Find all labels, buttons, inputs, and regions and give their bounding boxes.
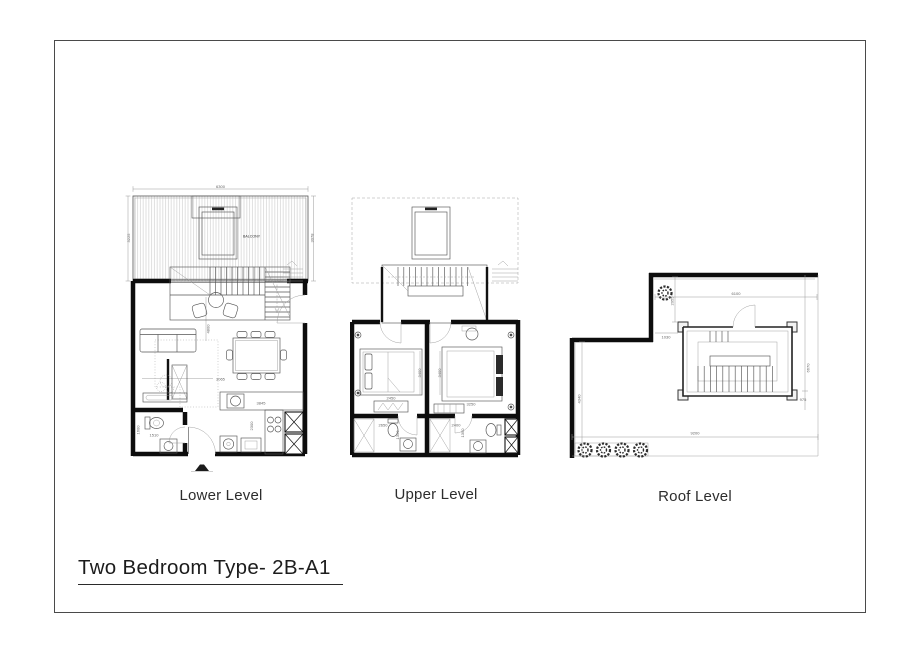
- rug: [155, 340, 218, 407]
- drawing-sheet: BALCONY 6300 3225 3078 4800 3065 3845 23…: [0, 0, 915, 655]
- dim-lower-top: 6300: [216, 184, 226, 189]
- wardrobe-1: [374, 401, 408, 412]
- hall-table: [191, 293, 238, 319]
- stove: [268, 417, 282, 432]
- toilet: [150, 418, 164, 429]
- lower-level-drawing: BALCONY 6300 3225 3078 4800 3065 3845 23…: [125, 183, 317, 475]
- dim-roof-left: 4340: [577, 394, 582, 404]
- toilet-2-tank: [497, 425, 501, 435]
- dim-bed1-h: 3400: [417, 368, 422, 378]
- entry: [189, 427, 216, 472]
- dim-living: 3065: [216, 377, 226, 382]
- roof-door-arc: [733, 305, 755, 327]
- balcony-below-outline: [352, 198, 518, 283]
- side-entry-steps: [492, 261, 518, 281]
- dim-lower-right: 3078: [310, 233, 315, 243]
- balcony-label: BALCONY: [243, 235, 261, 239]
- bedroom-2: [434, 326, 503, 413]
- upper-walls: [352, 320, 518, 455]
- dim-roof-stair-offset: 2055: [670, 296, 675, 306]
- dim-roof-right-lower: 975: [800, 397, 807, 402]
- toilet-1-tank: [388, 419, 398, 423]
- sheet-title: Two Bedroom Type- 2B-A1: [78, 556, 343, 585]
- wardrobe-2: [434, 404, 464, 413]
- dim-roof-right: 6670: [806, 363, 811, 373]
- dim-bath1-w: 2650: [379, 423, 389, 428]
- upper-level-drawing: 3400 3400 2450 3250 2650 1350 2400 1350: [350, 183, 522, 470]
- dim-lower-left: 3225: [126, 233, 131, 243]
- dim-hall: 4800: [206, 324, 211, 334]
- roof-level-drawing: 6100 2055 1030 4340 9200 6670 975: [565, 270, 825, 470]
- dim-bath1-d: 1350: [395, 430, 400, 440]
- dim-counter: 3845: [257, 401, 267, 406]
- dim-bath-d: 1600: [136, 425, 141, 435]
- dishwasher: [241, 438, 261, 452]
- dim-roof-bottom: 9200: [691, 431, 701, 436]
- bathroom-2: [430, 419, 501, 453]
- duct-shaft: [285, 412, 303, 454]
- dim-bath2-d: 1350: [460, 428, 465, 438]
- upper-level-plan: 3400 3400 2450 3250 2650 1350 2400 1350: [350, 183, 522, 470]
- bath-sink: [160, 439, 177, 453]
- roof-level-label: Roof Level: [565, 488, 825, 505]
- upper-level-label: Upper Level: [350, 486, 522, 503]
- roof-level-plan: 6100 2055 1030 4340 9200 6670 975: [565, 270, 825, 470]
- dim-roof-wall-offset: 1030: [662, 335, 672, 340]
- lower-level-plan: BALCONY 6300 3225 3078 4800 3065 3845 23…: [125, 183, 317, 475]
- roof-stair-enclosure: [678, 305, 797, 400]
- washer: [220, 436, 237, 452]
- upper-stair: [382, 265, 487, 323]
- roof-planting: [575, 287, 672, 457]
- balcony: BALCONY: [133, 196, 308, 281]
- dining-set: [227, 332, 287, 380]
- living-room: [140, 329, 218, 407]
- plant: [157, 375, 174, 393]
- spotlights: [355, 332, 514, 410]
- bed-1: [360, 349, 422, 395]
- bed-2: [442, 347, 502, 401]
- sink-2: [470, 440, 486, 453]
- lower-level-label: Lower Level: [125, 487, 317, 504]
- entry-step: [195, 465, 209, 472]
- dim-roof-top: 6100: [732, 291, 742, 296]
- dim-bath2-w: 2400: [452, 423, 462, 428]
- balcony-table: [412, 207, 450, 259]
- sofa: [140, 329, 196, 352]
- dim-bed2-h: 3400: [437, 368, 442, 378]
- bedroom-1: [360, 349, 422, 412]
- bench: [143, 393, 187, 402]
- sink-1: [400, 438, 416, 451]
- toilet-2: [486, 424, 496, 437]
- dim-bed2-w: 3250: [467, 402, 477, 407]
- dim-bath-w: 1510: [150, 433, 160, 438]
- dim-bed1-w: 2450: [387, 396, 397, 401]
- dim-kitchen: 2300: [249, 421, 254, 431]
